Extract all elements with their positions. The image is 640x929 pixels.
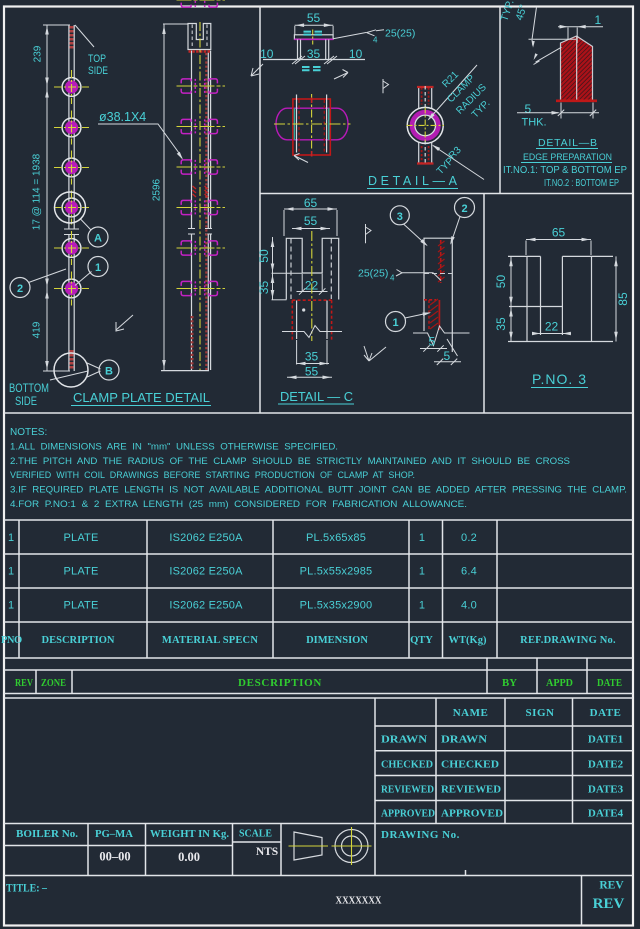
svg-text:10: 10	[349, 47, 363, 61]
svg-text:SIDE: SIDE	[15, 396, 37, 408]
svg-text:1: 1	[419, 566, 425, 578]
svg-text:DESCRIPTION: DESCRIPTION	[42, 635, 115, 646]
svg-text:22: 22	[545, 320, 559, 334]
svg-text:THK.: THK.	[522, 117, 547, 129]
svg-text:DESCRIPTION: DESCRIPTION	[238, 677, 322, 689]
svg-text:35: 35	[257, 281, 271, 295]
svg-text:DATE3: DATE3	[588, 784, 624, 796]
svg-text:5: 5	[444, 349, 451, 363]
svg-text:0.2: 0.2	[461, 532, 477, 544]
svg-text:CHECKED: CHECKED	[381, 759, 433, 771]
svg-text:PNO: PNO	[1, 635, 22, 646]
svg-text:55: 55	[305, 365, 319, 379]
svg-text:REV: REV	[599, 880, 624, 892]
svg-text:IT.NO.1: TOP & BOTTOM EP: IT.NO.1: TOP & BOTTOM EP	[503, 165, 627, 176]
svg-text:REF.DRAWING No.: REF.DRAWING No.	[520, 635, 616, 646]
svg-text:B: B	[105, 366, 113, 378]
svg-text:IS2062 E250A: IS2062 E250A	[169, 532, 243, 544]
svg-text:PLATE: PLATE	[63, 532, 98, 544]
svg-text:REV: REV	[15, 677, 33, 689]
svg-text:WEIGHT IN Kg.: WEIGHT IN Kg.	[150, 828, 229, 840]
svg-text:DETAIL—B: DETAIL—B	[538, 137, 597, 149]
svg-text:1: 1	[419, 532, 425, 544]
svg-text:QTY: QTY	[410, 635, 433, 646]
svg-text:1.ALL DIMENSIONS ARE IN "mm" U: 1.ALL DIMENSIONS ARE IN "mm" UNLESS OTHE…	[10, 442, 338, 453]
svg-text:PL.5x65x85: PL.5x65x85	[306, 532, 366, 544]
svg-text:PL.5x55x2985: PL.5x55x2985	[300, 566, 373, 578]
svg-text:DRAWING No.: DRAWING No.	[381, 829, 460, 841]
svg-text:IS2062 E250A: IS2062 E250A	[169, 566, 243, 578]
svg-text:DATE: DATE	[597, 677, 622, 689]
svg-text:DATE: DATE	[590, 707, 622, 719]
svg-text:5: 5	[525, 102, 532, 116]
svg-text:NOTES:: NOTES:	[10, 427, 47, 438]
svg-text:2: 2	[17, 283, 23, 295]
svg-text:2: 2	[461, 203, 467, 215]
svg-text:BOILER No.: BOILER No.	[16, 828, 78, 840]
svg-text:A: A	[94, 233, 102, 245]
svg-text:35: 35	[494, 317, 508, 331]
svg-text:55: 55	[307, 11, 321, 25]
svg-text:1: 1	[392, 317, 398, 329]
svg-text:35: 35	[305, 350, 319, 364]
svg-text:25(25): 25(25)	[358, 268, 388, 280]
svg-text:0.00: 0.00	[178, 850, 200, 864]
svg-text:6.4: 6.4	[461, 566, 477, 578]
svg-text:WT(Kg): WT(Kg)	[449, 635, 487, 646]
svg-text:85: 85	[616, 292, 630, 306]
svg-text:239: 239	[33, 45, 44, 62]
svg-text:P.NO. 3: P.NO. 3	[532, 371, 587, 387]
svg-text:1: 1	[8, 566, 14, 578]
svg-text:65: 65	[552, 226, 566, 240]
svg-text:DIMENSION: DIMENSION	[306, 635, 368, 646]
svg-text:ø38.1X4: ø38.1X4	[99, 110, 146, 124]
svg-text:35: 35	[307, 47, 321, 61]
svg-text:SIGN: SIGN	[526, 707, 555, 719]
svg-text:SCALE: SCALE	[239, 828, 272, 840]
svg-text:1: 1	[595, 13, 602, 27]
svg-text:EDGE PREPARATION: EDGE PREPARATION	[523, 151, 612, 162]
svg-text:1: 1	[95, 262, 101, 274]
svg-text:00–00: 00–00	[99, 850, 130, 864]
svg-text:3.IF REQUIRED PLATE LENGTH IS: 3.IF REQUIRED PLATE LENGTH IS NOT AVAILA…	[10, 485, 627, 496]
svg-text:TOP: TOP	[88, 53, 106, 65]
svg-text:IS2062 E250A: IS2062 E250A	[169, 600, 243, 612]
svg-text:APPD: APPD	[546, 677, 573, 689]
svg-text:50: 50	[494, 275, 508, 289]
svg-text:PLATE: PLATE	[63, 566, 98, 578]
svg-text:2.THE PITCH AND THE RADIUS OF: 2.THE PITCH AND THE RADIUS OF THE CLAMP …	[10, 456, 570, 467]
svg-text:PG–MA: PG–MA	[95, 828, 133, 840]
svg-text:REVIEWED: REVIEWED	[441, 784, 501, 796]
svg-text:25(25): 25(25)	[385, 28, 415, 40]
svg-text:1: 1	[419, 600, 425, 612]
svg-text:65: 65	[304, 196, 318, 210]
svg-text:CHECKED: CHECKED	[441, 759, 499, 771]
svg-text:PL.5x35x2900: PL.5x35x2900	[300, 600, 373, 612]
svg-text:DRAWN: DRAWN	[441, 734, 487, 746]
svg-text:SIDE: SIDE	[88, 65, 108, 77]
svg-text:4: 4	[373, 36, 378, 45]
svg-text:NAME: NAME	[453, 707, 489, 719]
svg-text:DRAWN: DRAWN	[381, 734, 427, 746]
svg-text:4: 4	[390, 274, 395, 283]
svg-text:10: 10	[260, 47, 274, 61]
svg-text:1: 1	[8, 600, 14, 612]
svg-text:DETAIL — C: DETAIL — C	[280, 390, 353, 404]
svg-text:55: 55	[304, 214, 318, 228]
svg-text:DATE4: DATE4	[588, 808, 624, 820]
svg-text:4.0: 4.0	[461, 600, 477, 612]
svg-text:TITLE: –: TITLE: –	[6, 883, 47, 895]
svg-text:CLAMP PLATE DETAIL: CLAMP PLATE DETAIL	[73, 391, 210, 405]
svg-text:NTS: NTS	[256, 846, 278, 858]
svg-text:17 @ 114 = 1938: 17 @ 114 = 1938	[32, 153, 43, 230]
svg-text:REVIEWED: REVIEWED	[381, 784, 434, 796]
svg-text:ZONE: ZONE	[41, 677, 66, 689]
svg-text:MATERIAL SPECN: MATERIAL SPECN	[162, 635, 258, 646]
svg-text:APPROVED: APPROVED	[381, 808, 435, 820]
svg-text:APPROVED: APPROVED	[441, 808, 503, 820]
svg-text:VERIFIED WITH COIL DRAWINGS BE: VERIFIED WITH COIL DRAWINGS BEFORE START…	[10, 470, 415, 481]
svg-text:DATE1: DATE1	[588, 734, 623, 746]
svg-text:REV: REV	[593, 896, 625, 912]
svg-text:1: 1	[8, 532, 14, 544]
svg-text:XXXXXXX: XXXXXXX	[336, 895, 382, 907]
svg-text:4.FOR P.NO:1 & 2 EXTRA LENGTH: 4.FOR P.NO:1 & 2 EXTRA LENGTH (25 mm) CO…	[10, 499, 467, 510]
svg-text:PLATE: PLATE	[63, 600, 98, 612]
svg-text:3: 3	[397, 211, 403, 223]
svg-text:IT.NO.2 : BOTTOM EP: IT.NO.2 : BOTTOM EP	[544, 178, 619, 189]
svg-text:BY: BY	[502, 677, 517, 689]
svg-text:BOTTOM: BOTTOM	[9, 383, 49, 395]
svg-text:DATE2: DATE2	[588, 759, 624, 771]
svg-text:2596: 2596	[152, 178, 163, 201]
svg-text:5: 5	[429, 335, 436, 349]
svg-text:50: 50	[257, 249, 271, 263]
svg-text:419: 419	[32, 321, 43, 338]
